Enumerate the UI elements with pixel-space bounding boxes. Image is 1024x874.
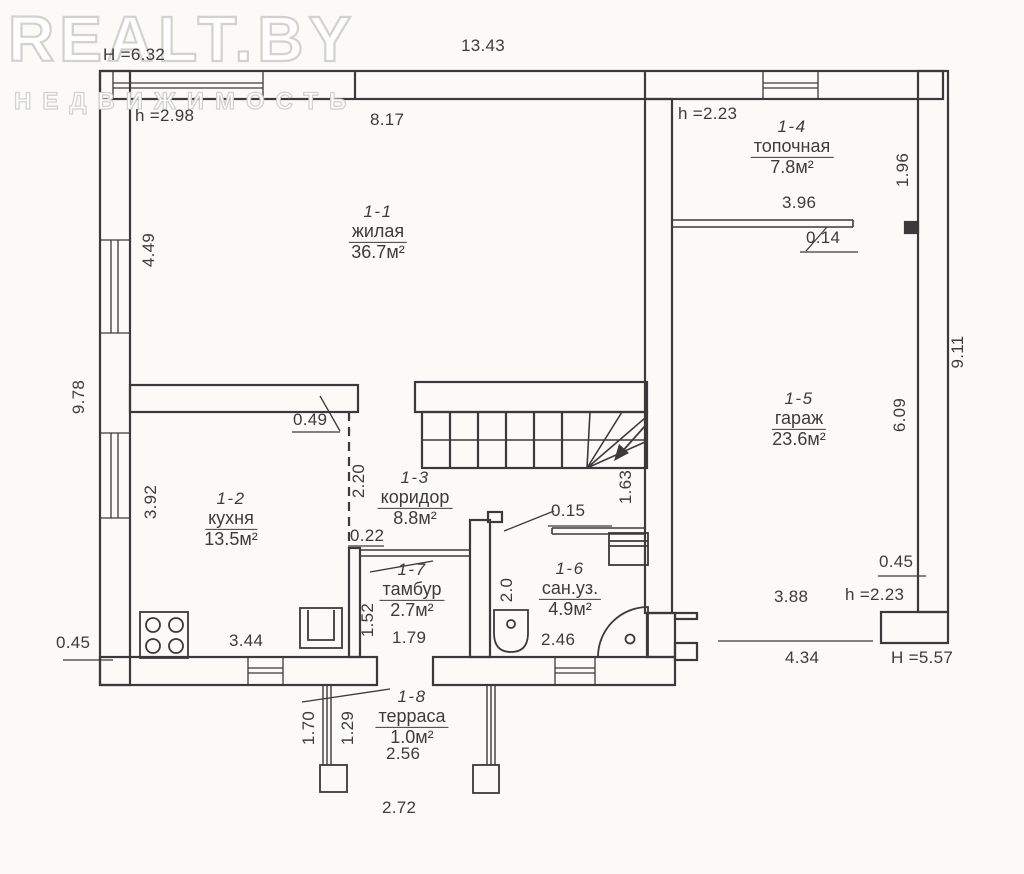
dim-opening: 2.20 bbox=[349, 464, 369, 498]
room-label-vestibule: 1-7 тамбур 2.7м² bbox=[380, 561, 445, 621]
room-area: 1.0м² bbox=[375, 728, 448, 748]
dim-sanuzel-depth: 2.0 bbox=[497, 578, 517, 603]
dim-terrace-left: 1.70 bbox=[299, 711, 319, 745]
room-area: 7.8м² bbox=[751, 158, 834, 178]
room-label-bathroom: 1-6 сан.уз. 4.9м² bbox=[539, 560, 601, 620]
door-arc bbox=[598, 607, 648, 657]
stairs bbox=[415, 382, 647, 468]
room-area: 8.8м² bbox=[378, 509, 453, 529]
room-area: 23.6м² bbox=[772, 430, 826, 450]
interior-walls bbox=[130, 99, 918, 657]
dim-left-offset: 0.45 bbox=[56, 633, 90, 653]
room-label-corridor: 1-3 коридор 8.8м² bbox=[378, 469, 453, 529]
room-name: гараж bbox=[772, 409, 826, 431]
room-name: сан.уз. bbox=[539, 579, 601, 601]
room-name: терраса bbox=[375, 707, 448, 729]
room-number: 1-2 bbox=[204, 490, 257, 509]
dim-garage-step: 0.45 bbox=[879, 552, 913, 572]
room-number: 1-4 bbox=[751, 118, 834, 137]
dim-boiler-ceiling: h =2.23 bbox=[678, 104, 737, 124]
room-number: 1-7 bbox=[380, 561, 445, 580]
room-label-garage: 1-5 гараж 23.6м² bbox=[772, 390, 826, 450]
dim-terrace-outer: 2.72 bbox=[382, 798, 416, 818]
room-number: 1-3 bbox=[378, 469, 453, 488]
room-area: 2.7м² bbox=[380, 601, 445, 621]
dim-garage-depth: 6.09 bbox=[890, 398, 910, 432]
room-name: топочная bbox=[751, 137, 834, 159]
windows bbox=[100, 71, 818, 685]
dim-left-upper: 4.49 bbox=[139, 233, 159, 267]
dim-sanuzel-wall: 0.15 bbox=[551, 501, 585, 521]
dim-right-side: 9.11 bbox=[948, 335, 968, 368]
boiler bbox=[609, 533, 648, 565]
room-area: 36.7м² bbox=[349, 243, 407, 263]
dim-tambour-width: 1.79 bbox=[392, 628, 426, 648]
dim-garage-height: H =5.57 bbox=[891, 648, 953, 668]
dim-living-ceiling: h =2.98 bbox=[135, 106, 194, 126]
dim-wall-stub: 0.49 bbox=[293, 410, 327, 430]
room-area: 4.9м² bbox=[539, 600, 601, 620]
room-number: 1-6 bbox=[539, 560, 601, 579]
dim-living-width: 8.17 bbox=[370, 110, 404, 130]
room-area: 13.5м² bbox=[204, 530, 257, 550]
room-label-terrace: 1-8 терраса 1.0м² bbox=[375, 688, 448, 748]
dim-kitchen-width: 3.44 bbox=[229, 631, 263, 651]
room-number: 1-1 bbox=[349, 203, 407, 222]
room-label-boiler: 1-4 топочная 7.8м² bbox=[751, 118, 834, 178]
room-label-kitchen: 1-2 кухня 13.5м² bbox=[204, 490, 257, 550]
floorplan-drawing bbox=[0, 0, 1024, 874]
dim-building-height: H =6.32 bbox=[103, 45, 165, 65]
dim-terrace-mid: 1.29 bbox=[338, 711, 358, 745]
kitchen-sink bbox=[300, 608, 342, 648]
dim-boiler-door: 0.14 bbox=[806, 228, 840, 248]
dim-left-lower: 3.92 bbox=[141, 485, 161, 519]
toilet bbox=[494, 610, 528, 652]
room-name: тамбур bbox=[380, 580, 445, 602]
dim-garage-ceiling: h =2.23 bbox=[845, 585, 904, 605]
floorplan-page: REALT.BY НЕДВИЖИМОСТЬ H =6.32 13.43 h =2… bbox=[0, 0, 1024, 874]
stove bbox=[140, 612, 188, 658]
dim-total-width: 13.43 bbox=[461, 36, 505, 56]
realt-watermark-logo: REALT.BY bbox=[8, 2, 356, 76]
room-name: кухня bbox=[205, 509, 257, 531]
dim-boiler-width: 3.96 bbox=[782, 193, 816, 213]
room-name: коридор bbox=[378, 488, 453, 510]
room-name: жилая bbox=[349, 222, 407, 244]
room-number: 1-8 bbox=[375, 688, 448, 707]
room-label-living: 1-1 жилая 36.7м² bbox=[349, 203, 407, 263]
room-number: 1-5 bbox=[772, 390, 826, 409]
dim-tambour-wall: 1.52 bbox=[358, 603, 378, 637]
dim-left-side: 9.78 bbox=[69, 380, 89, 414]
dim-garage-door: 4.34 bbox=[785, 648, 819, 668]
dim-sanuzel-width: 2.46 bbox=[541, 630, 575, 650]
dim-stairs-width: 1.63 bbox=[616, 470, 636, 504]
dim-boiler-depth: 1.96 bbox=[893, 153, 913, 187]
dim-garage-inner: 3.88 bbox=[774, 587, 808, 607]
